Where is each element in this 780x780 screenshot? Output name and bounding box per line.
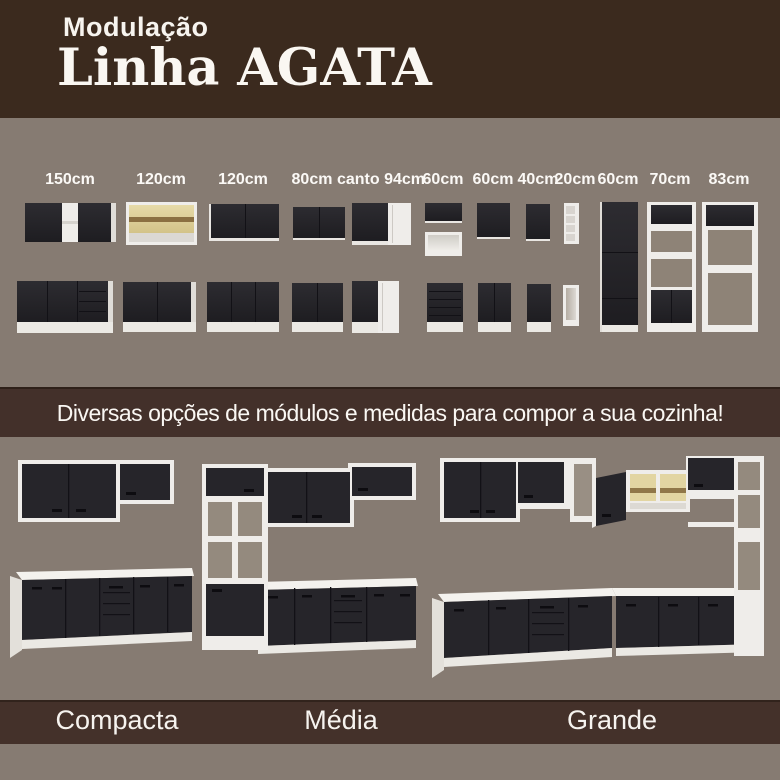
- product-infographic: Modulação Linha AGATA 150cm 120cm 120cm …: [0, 0, 780, 780]
- kitchen-label-compacta: Compacta: [17, 705, 217, 736]
- footer-strip: [0, 744, 780, 780]
- kitchen-media-image: [196, 448, 424, 693]
- kitchens-section: [0, 0, 780, 780]
- kitchen-label-media: Média: [241, 705, 441, 736]
- kitchen-grande-image: [430, 446, 770, 696]
- kitchen-compacta-image: [8, 452, 203, 687]
- kitchen-label-grande: Grande: [512, 705, 712, 736]
